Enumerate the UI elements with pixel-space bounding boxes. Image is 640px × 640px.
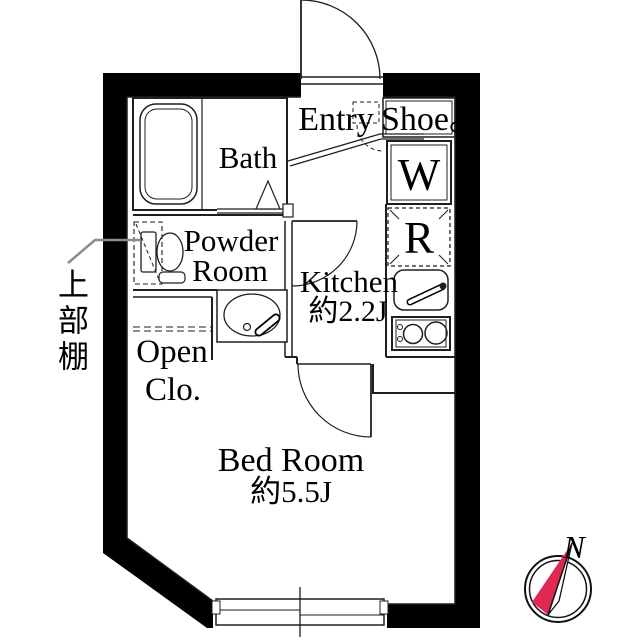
window-jamb: [212, 601, 220, 614]
washbasin: [217, 290, 287, 342]
floorplan-canvas: N Entry Shoe。 Bath Powder Room Kitchen 約…: [0, 0, 640, 640]
powder-room-label-line2: Room: [192, 253, 268, 288]
basin-drain: [244, 324, 251, 331]
bedroom-label-line2: 約5.5J: [250, 474, 332, 509]
entry-label: Entry: [298, 101, 374, 138]
door-jamb: [283, 204, 293, 217]
floorplan: N Entry Shoe。 Bath Powder Room Kitchen 約…: [0, 0, 640, 640]
entry-opening: [301, 70, 383, 100]
upper-shelf-label: 上部棚: [48, 268, 93, 376]
sink-faucet-head: [440, 283, 447, 290]
kitchen-sink: [394, 270, 448, 310]
washer-label: W: [398, 150, 441, 200]
open-closet-label-line2: Clo.: [145, 372, 201, 408]
window-jamb: [380, 601, 388, 614]
bath-label: Bath: [219, 140, 278, 175]
kitchen-label-line1: Kitchen: [300, 264, 399, 299]
toilet-base: [159, 272, 185, 283]
kitchen-label-line2: 約2.2J: [308, 295, 387, 328]
north-label: N: [562, 529, 586, 565]
refrigerator-label: R: [404, 213, 434, 263]
shoe-box-label: Shoe。: [381, 101, 483, 138]
open-closet-label-line1: Open: [136, 334, 207, 370]
